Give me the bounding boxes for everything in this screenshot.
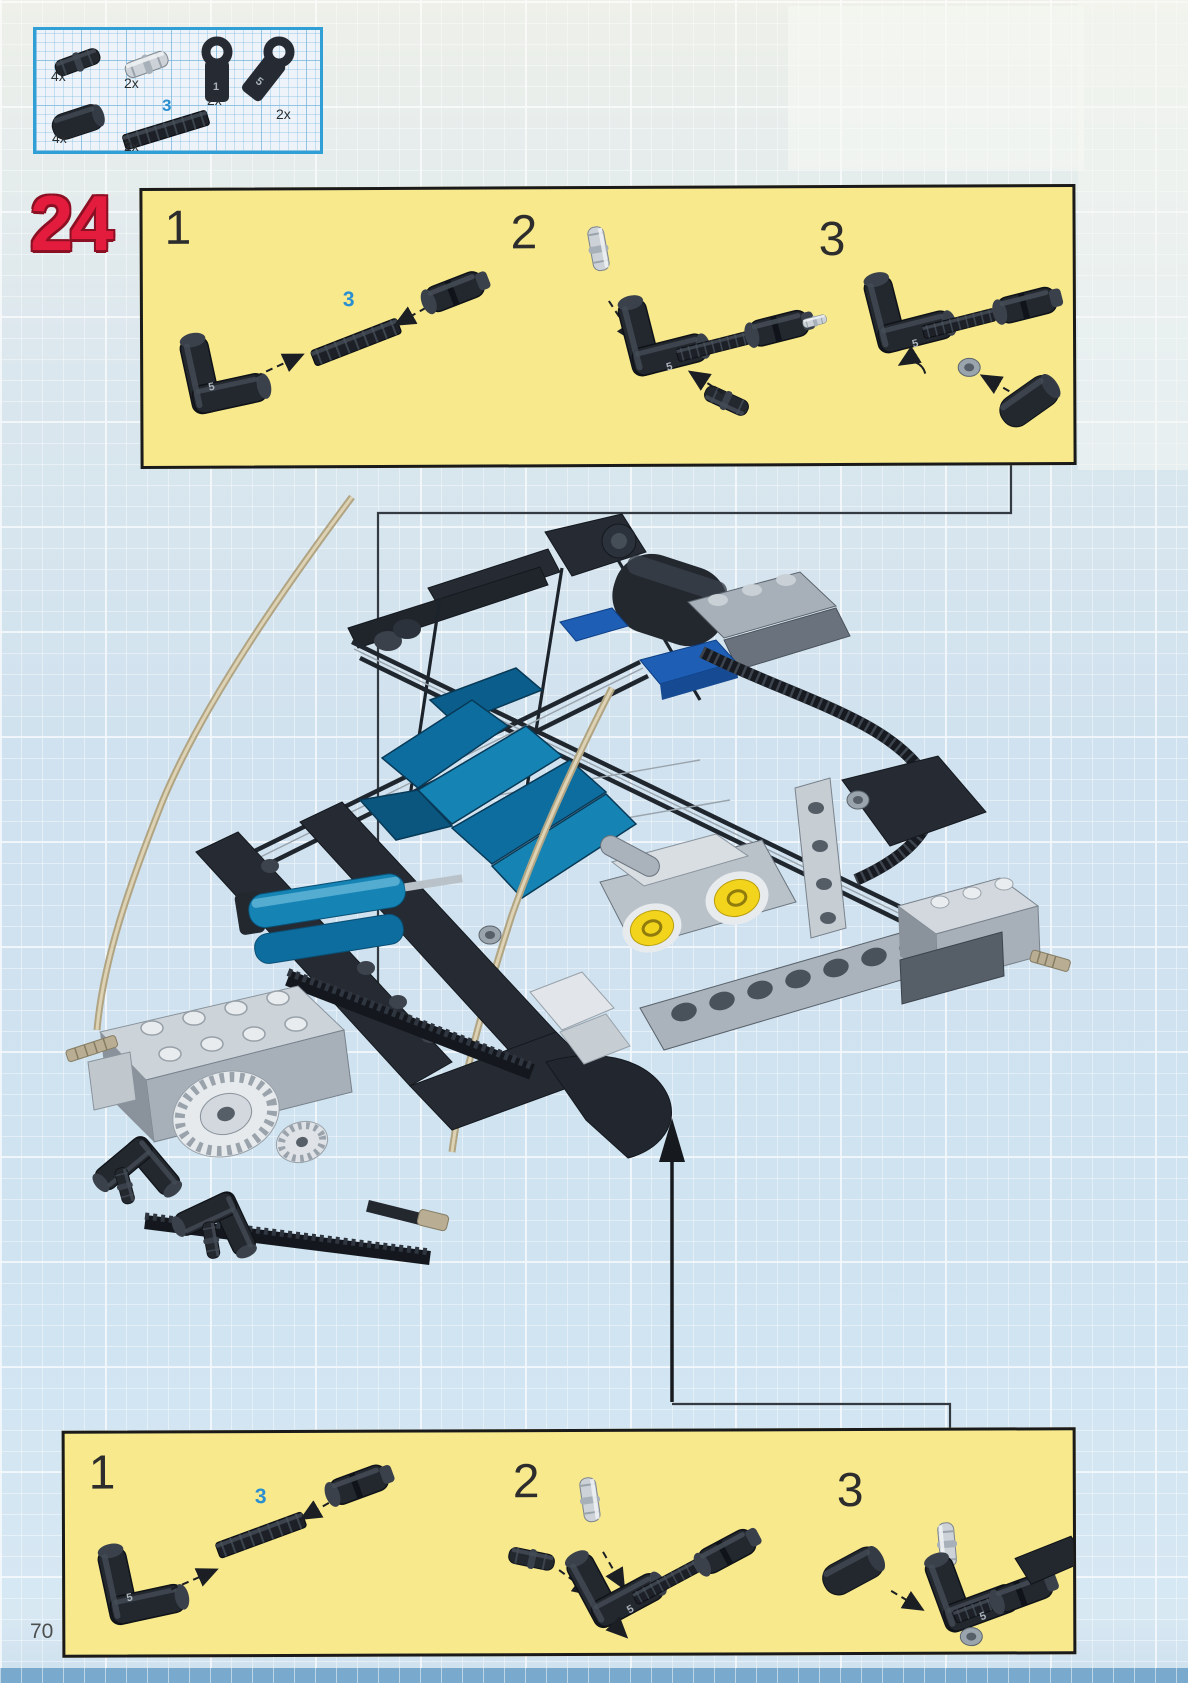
- parts-callout-art: 1 5: [36, 30, 320, 151]
- substep1-art: 5 3: [95, 1460, 397, 1626]
- substep-art-bottom: 5 3 5: [65, 1430, 1074, 1655]
- axle-length-label: 3: [255, 1485, 267, 1508]
- axle-length-label: 3: [343, 288, 355, 311]
- part-qty-label: 2x: [276, 106, 291, 122]
- substep1-art: 5 3: [177, 266, 494, 415]
- instruction-panel-bottom: 1 2 3 5 3 5: [62, 1427, 1077, 1658]
- substep-art-top: 5 3 5: [142, 187, 1073, 466]
- instruction-page: 1 5 4x 2x 2x 2x 4x 2x 3 24: [0, 0, 1188, 1683]
- page-number: 70: [30, 1620, 53, 1644]
- step-number: 24: [30, 178, 111, 269]
- part-qty-label: 2x: [124, 138, 139, 154]
- part-connector5-icon: 5: [240, 41, 290, 103]
- substep3-art: 5: [817, 1521, 1073, 1646]
- parts-callout-box: 1 5 4x 2x 2x 2x 4x 2x 3: [33, 27, 323, 154]
- part-qty-label: 2x: [207, 92, 222, 108]
- part-qty-label: 4x: [51, 68, 66, 84]
- next-page-edge: [0, 1668, 1188, 1683]
- part-qty-label: 4x: [52, 130, 67, 146]
- substep2-art: 5: [585, 224, 829, 420]
- axle-length-label: 3: [162, 96, 171, 116]
- substep3-art: 5: [861, 256, 1066, 434]
- substep2-art: 5: [507, 1476, 766, 1636]
- instruction-panel-top: 1 2 3 5 3 5: [139, 184, 1076, 469]
- part-qty-label: 2x: [124, 75, 139, 91]
- engine-block: [597, 832, 796, 960]
- chassis-model: [65, 497, 1071, 1281]
- attachment-arrow: [659, 1118, 685, 1402]
- leader-line-bottom: [672, 1404, 950, 1428]
